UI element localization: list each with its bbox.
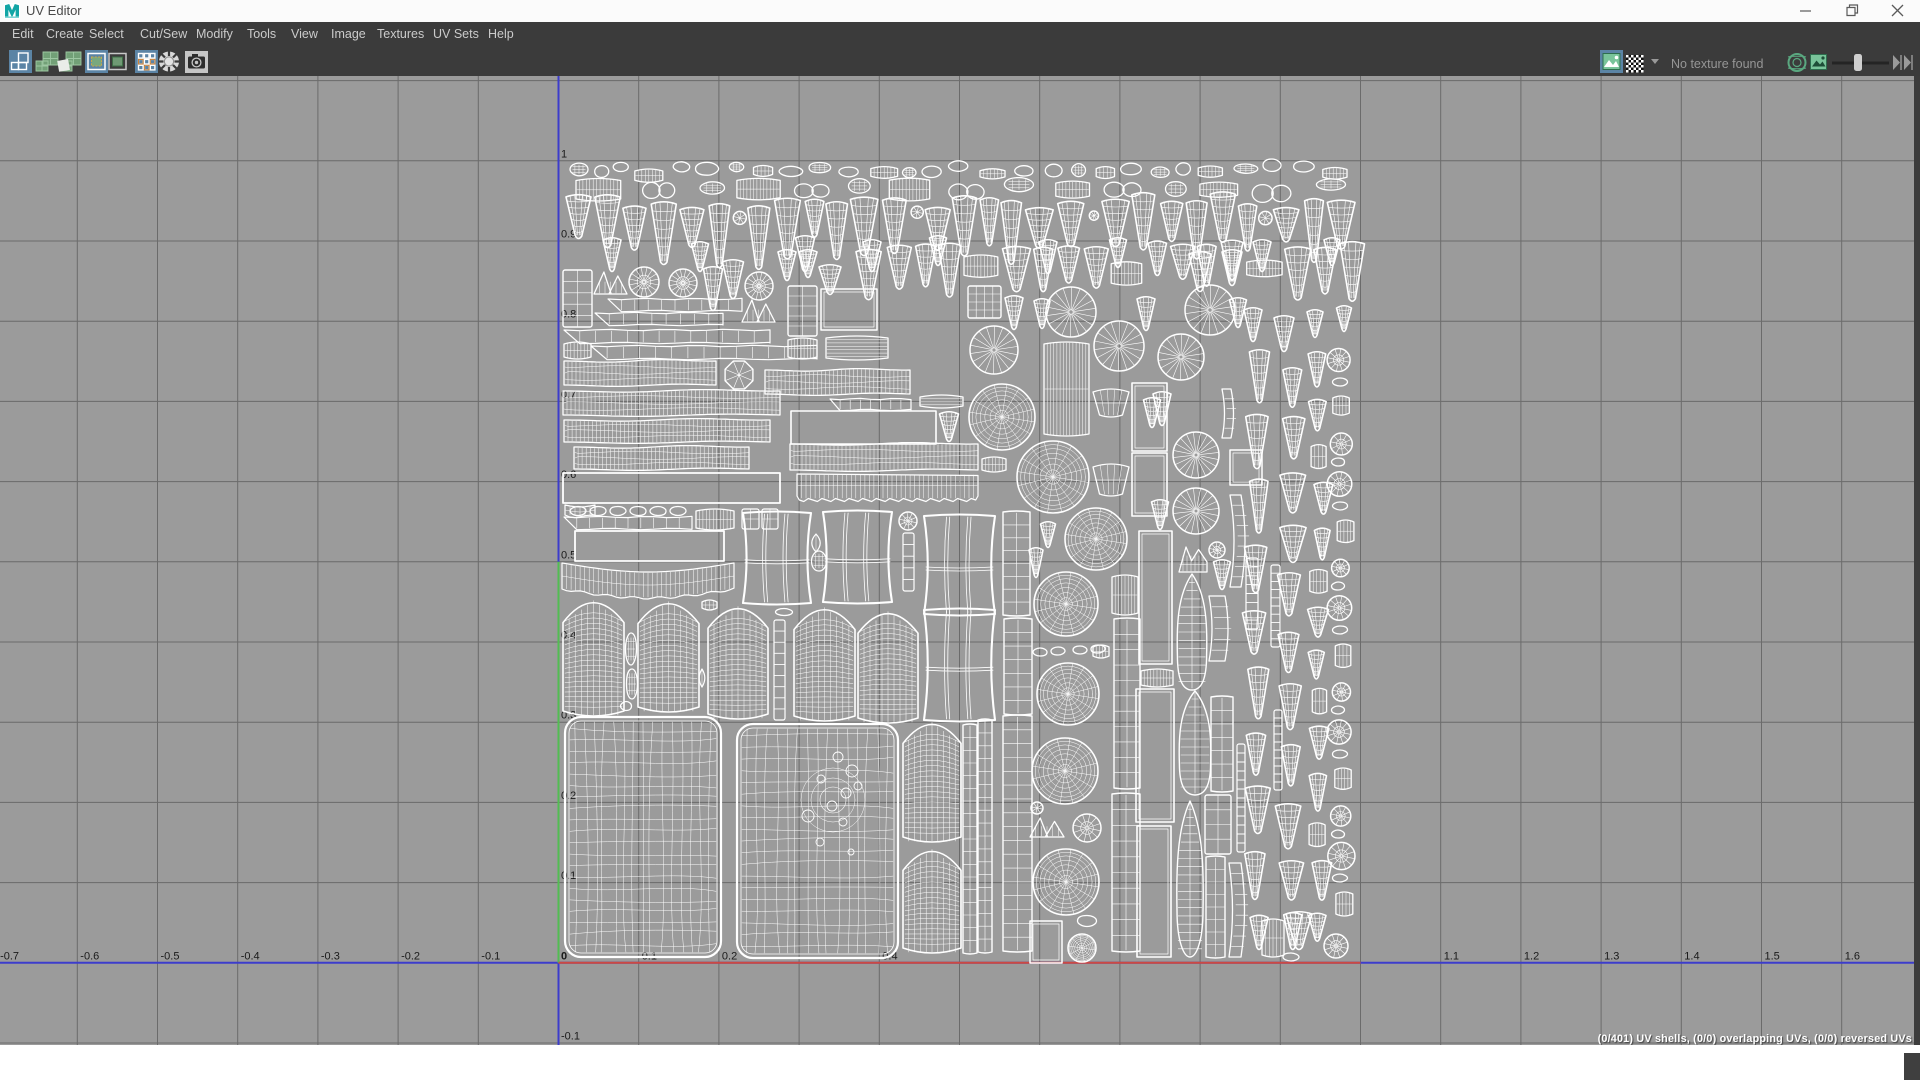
- svg-text:1.1: 1.1: [1444, 950, 1459, 962]
- svg-text:0: 0: [561, 950, 567, 962]
- svg-text:-0.5: -0.5: [161, 950, 180, 962]
- svg-text:-0.7: -0.7: [0, 950, 19, 962]
- svg-text:-0.3: -0.3: [321, 950, 340, 962]
- svg-text:1.4: 1.4: [1684, 950, 1699, 962]
- svg-text:-0.1: -0.1: [561, 1031, 580, 1043]
- svg-text:1.5: 1.5: [1765, 950, 1780, 962]
- svg-text:-0.2: -0.2: [401, 950, 420, 962]
- svg-text:-0.6: -0.6: [80, 950, 99, 962]
- svg-text:1.6: 1.6: [1845, 950, 1860, 962]
- svg-text:1: 1: [561, 148, 567, 160]
- svg-text:0.5: 0.5: [561, 549, 576, 561]
- svg-text:-0.1: -0.1: [481, 950, 500, 962]
- svg-text:0.2: 0.2: [722, 950, 737, 962]
- svg-text:-0.4: -0.4: [241, 950, 260, 962]
- svg-text:1.3: 1.3: [1604, 950, 1619, 962]
- svg-text:1.2: 1.2: [1524, 950, 1539, 962]
